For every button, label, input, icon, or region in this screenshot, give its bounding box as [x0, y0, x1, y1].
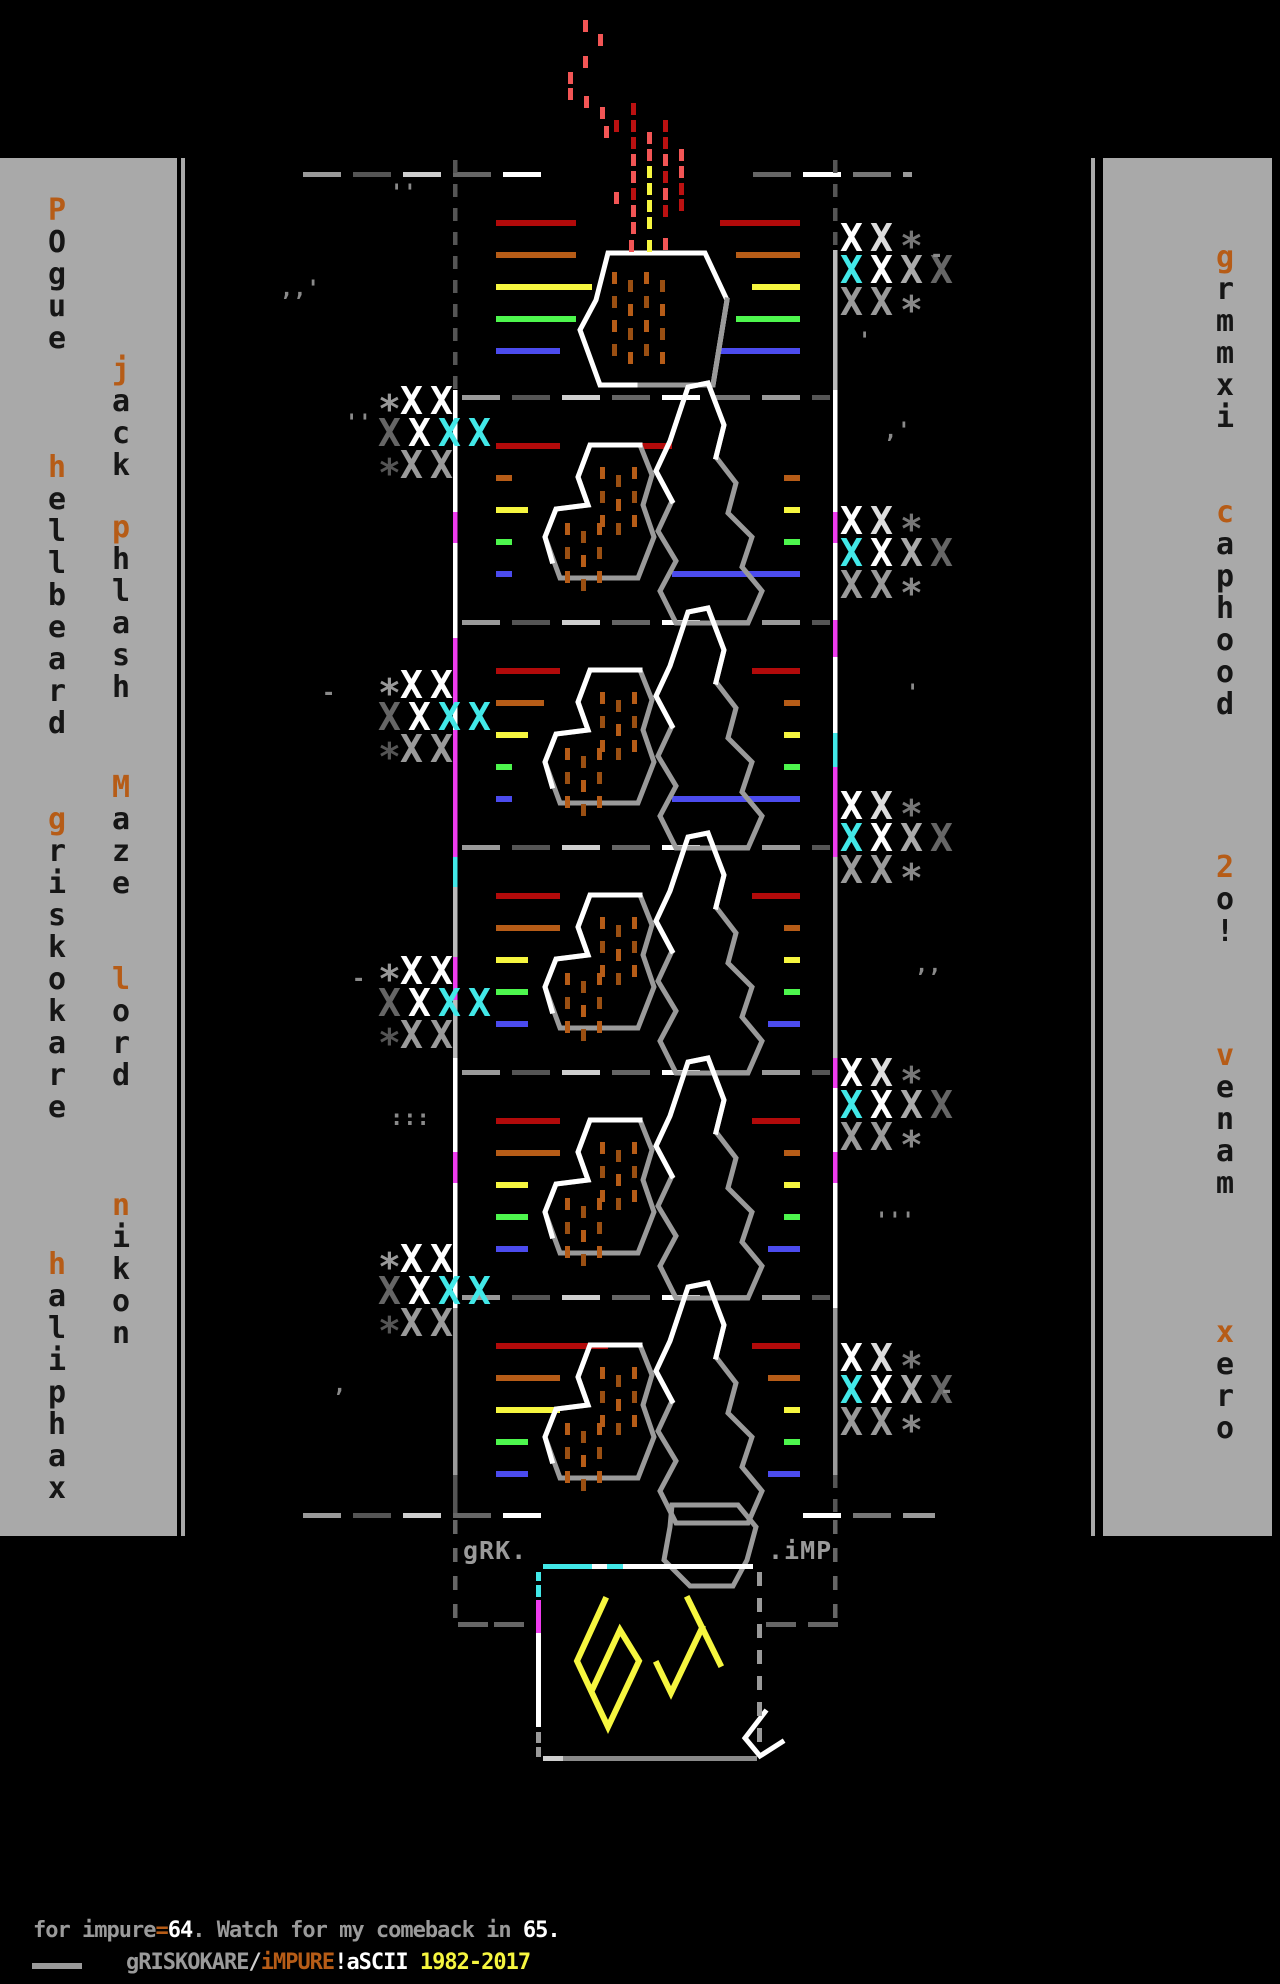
svg-text:': ' [906, 681, 919, 706]
svg-text:-: - [352, 967, 365, 992]
svg-text:''': ''' [875, 1209, 915, 1234]
svg-text:X: X [840, 1400, 863, 1444]
svg-text:X: X [900, 816, 923, 860]
footer-text-segment: . Watch for my comeback in [192, 1918, 523, 1943]
svg-text:X: X [930, 816, 953, 860]
footer-text-segment: 64 [168, 1918, 193, 1943]
grk-label: gRK. [463, 1536, 527, 1565]
svg-text:X: X [400, 1013, 423, 1057]
svg-text:X: X [378, 981, 401, 1025]
svg-text:X: X [378, 1269, 401, 1313]
svg-text:*: * [900, 571, 923, 615]
svg-text:X: X [430, 1013, 453, 1057]
svg-text:X: X [840, 1115, 863, 1159]
svg-text:X: X [930, 531, 953, 575]
svg-text:'': '' [390, 181, 417, 206]
svg-text:X: X [900, 1368, 923, 1412]
footer-text-segment: iMPURE [261, 1950, 334, 1975]
footer-text-segment: 65. [523, 1918, 560, 1943]
svg-text:-: - [930, 243, 943, 268]
svg-text::::: ::: [390, 1106, 430, 1131]
svg-text:,: , [333, 1373, 346, 1398]
svg-text:X: X [430, 443, 453, 487]
footer-text-segment: / [248, 1950, 260, 1975]
svg-text:-: - [322, 681, 335, 706]
svg-text:': ' [858, 329, 871, 354]
svg-text:X: X [900, 531, 923, 575]
svg-text:-: - [940, 1379, 953, 1404]
svg-text:X: X [840, 848, 863, 892]
imp-label: .iMP [768, 1536, 832, 1565]
svg-text:X: X [900, 1083, 923, 1127]
svg-text:X: X [468, 411, 491, 455]
footer-text-segment: for impure [33, 1918, 155, 1943]
svg-text:X: X [930, 1083, 953, 1127]
footer-text-segment: ! [334, 1950, 346, 1975]
svg-text:*: * [378, 1021, 401, 1065]
svg-text:X: X [870, 1400, 893, 1444]
footer-text-segment: = [155, 1918, 167, 1943]
svg-text:X: X [870, 563, 893, 607]
svg-text:X: X [400, 727, 423, 771]
svg-text:X: X [378, 411, 401, 455]
svg-text:*: * [378, 451, 401, 495]
svg-text:X: X [400, 1301, 423, 1345]
svg-text:,': ,' [884, 419, 911, 444]
svg-text:X: X [468, 981, 491, 1025]
svg-text:X: X [430, 1301, 453, 1345]
svg-text:X: X [430, 727, 453, 771]
svg-text:,,': ,,' [280, 277, 320, 302]
svg-text:X: X [468, 695, 491, 739]
footer-em-dash [32, 1963, 82, 1969]
ascii-art-scene: POguehellbeardgriskokarehaliphaxjackphla… [0, 0, 1280, 1984]
svg-text:X: X [870, 1115, 893, 1159]
footer-text-segment: gRISKOKARE [126, 1950, 248, 1975]
footer-text-segment: 1982-2017 [420, 1950, 530, 1975]
footer-line-2: gRISKOKARE/iMPURE!aSCII 1982-2017 [32, 1950, 530, 1975]
svg-text:*: * [378, 735, 401, 779]
svg-text:X: X [468, 1269, 491, 1313]
svg-text:X: X [870, 848, 893, 892]
svg-text:X: X [840, 563, 863, 607]
footer-line-1: for impure=64. Watch for my comeback in … [33, 1918, 560, 1943]
svg-text:,,: ,, [915, 953, 942, 978]
svg-text:X: X [900, 248, 923, 292]
svg-text:*: * [900, 288, 923, 332]
svg-text:*: * [900, 856, 923, 900]
footer-text-segment: aSCII [346, 1950, 419, 1975]
flame-ascii-art-canvas: *XXXXXX*XX*XXXXXX*XX*XXXXXX*XX*XXXXXX*XX… [0, 0, 1280, 1984]
svg-text:X: X [870, 280, 893, 324]
svg-text:X: X [400, 443, 423, 487]
svg-text:*: * [900, 1123, 923, 1167]
svg-text:*: * [900, 1408, 923, 1452]
svg-text:*: * [378, 1309, 401, 1353]
svg-text:X: X [840, 280, 863, 324]
svg-text:X: X [378, 695, 401, 739]
svg-text:'': '' [345, 411, 372, 436]
